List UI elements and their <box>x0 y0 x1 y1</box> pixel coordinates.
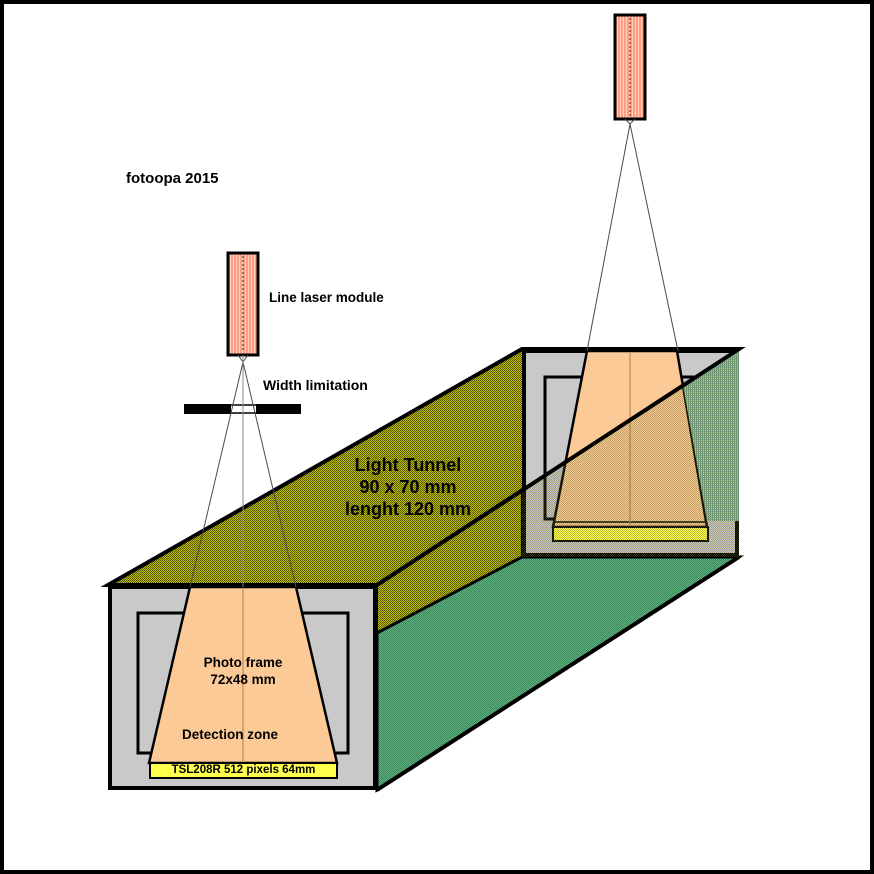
slit-right-blade <box>256 404 301 414</box>
line-laser-module-label: Line laser module <box>269 290 384 305</box>
slit-left-blade <box>184 404 231 414</box>
photo-frame-label-line1: Photo frame <box>163 654 323 671</box>
detection-zone-label: Detection zone <box>150 727 310 742</box>
light-tunnel-label-line1: Light Tunnel <box>308 454 508 476</box>
credit-text: fotoopa 2015 <box>126 170 219 187</box>
light-tunnel-label: Light Tunnel 90 x 70 mm lenght 120 mm <box>308 454 508 520</box>
right-laser-module <box>615 15 645 119</box>
left-laser-module <box>228 253 258 355</box>
light-tunnel-diagram <box>0 0 874 874</box>
diagram-canvas: fotoopa 2015 Line laser module Width lim… <box>0 0 874 874</box>
photo-frame-label: Photo frame 72x48 mm <box>163 654 323 688</box>
light-tunnel-label-line3: lenght 120 mm <box>308 498 508 520</box>
sensor-strip-label: TSL208R 512 pixels 64mm <box>150 763 337 778</box>
light-tunnel-label-line2: 90 x 70 mm <box>308 476 508 498</box>
width-limitation-label: Width limitation <box>263 377 368 393</box>
photo-frame-label-line2: 72x48 mm <box>163 671 323 688</box>
